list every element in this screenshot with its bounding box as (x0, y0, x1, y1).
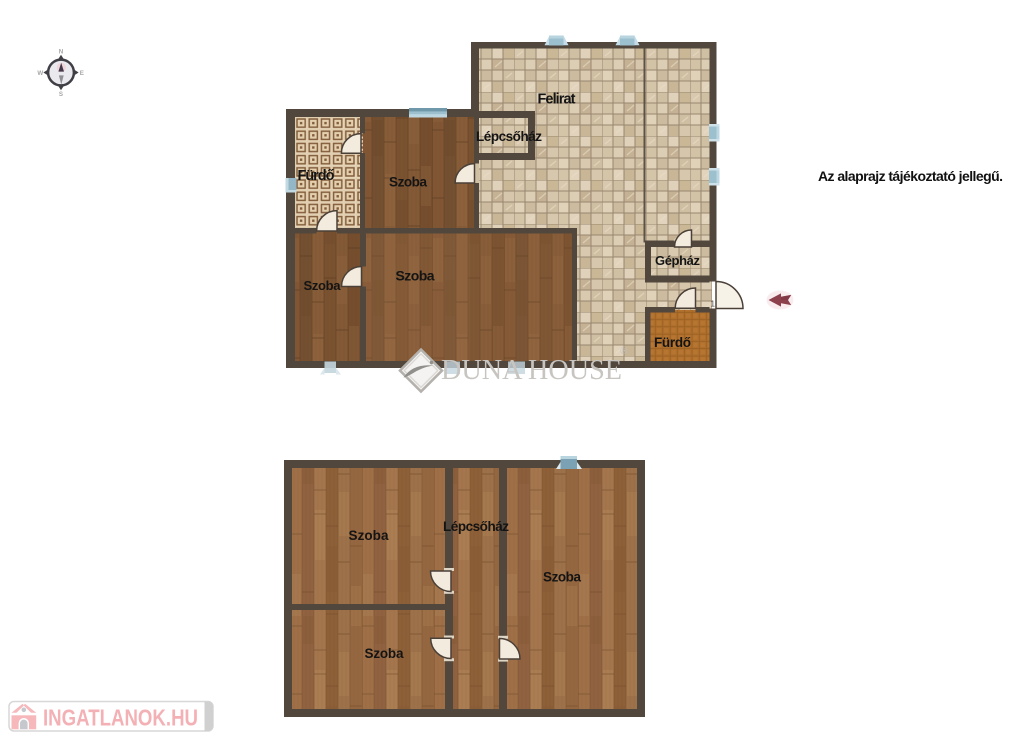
svg-text:Lépcsőház: Lépcsőház (443, 519, 509, 534)
svg-text:W: W (37, 70, 43, 77)
svg-text:1: 1 (711, 300, 716, 309)
svg-text:Gépház: Gépház (655, 253, 701, 268)
svg-text:Szoba: Szoba (365, 646, 404, 661)
svg-text:DUNA HOUSE: DUNA HOUSE (441, 355, 622, 386)
svg-text:E: E (80, 70, 84, 77)
svg-text:Szoba: Szoba (304, 278, 342, 293)
svg-text:Szoba: Szoba (396, 268, 435, 284)
svg-text:Szoba: Szoba (389, 175, 427, 190)
svg-text:Szoba: Szoba (349, 528, 389, 543)
svg-text:INGATLANOK.HU: INGATLANOK.HU (43, 705, 198, 731)
svg-text:Lépcsőház: Lépcsőház (476, 129, 542, 144)
svg-text:Szoba: Szoba (543, 570, 581, 585)
svg-text:Fürdő: Fürdő (298, 168, 335, 184)
svg-text:N: N (59, 49, 64, 56)
svg-text:Fürdő: Fürdő (654, 335, 691, 350)
svg-text:S: S (59, 91, 63, 98)
svg-text:®: ® (620, 346, 628, 357)
svg-text:Az alaprajz tájékoztató jelleg: Az alaprajz tájékoztató jellegű. (818, 168, 1003, 184)
svg-text:Felirat: Felirat (538, 92, 576, 108)
